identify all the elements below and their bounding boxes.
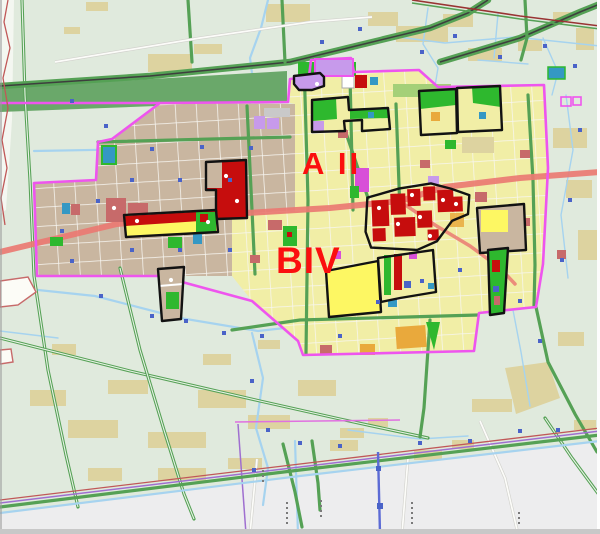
zoning-map: A II BIV [0,0,600,534]
zone-trapezoid-south [158,267,184,321]
zone-strip-west [124,210,218,237]
zone-violet [294,73,324,90]
district-label-a-ii: A II [302,146,361,181]
zone-northeast-a [419,89,457,135]
district-label-b-iv: BIV [276,240,341,281]
zone-northeast-b [457,86,502,132]
map-canvas: A II BIV [0,0,600,534]
